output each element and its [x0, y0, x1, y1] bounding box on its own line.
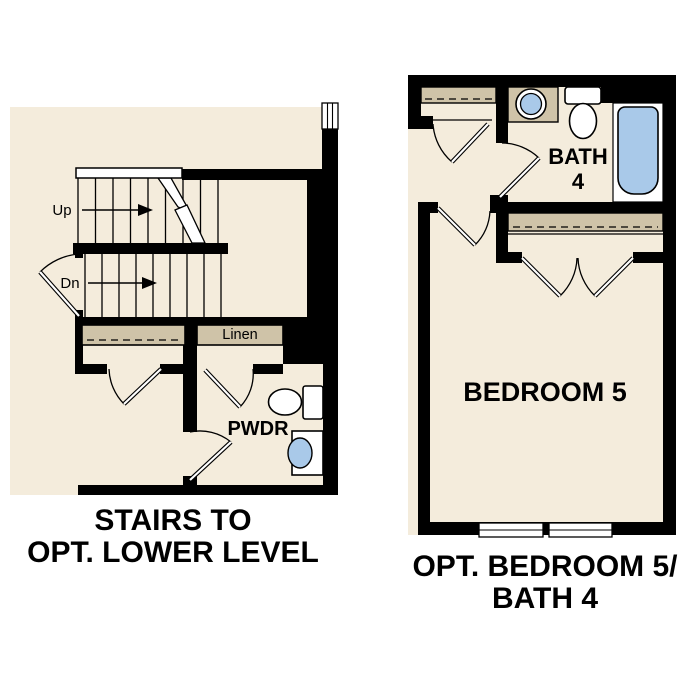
bath-label-line2: 4 — [572, 169, 585, 194]
wall-segment — [73, 243, 228, 254]
wall-segment — [75, 243, 83, 258]
wall-segment — [633, 252, 676, 263]
wall-segment — [78, 485, 338, 495]
wall-segment — [75, 364, 107, 374]
bath-label-line1: BATH — [548, 144, 607, 169]
wall-segment — [322, 129, 338, 180]
left-plan-caption: STAIRS TO OPT. LOWER LEVEL — [27, 504, 319, 569]
bedroom-window-icon — [549, 523, 612, 537]
stair-landing-bar — [76, 168, 182, 178]
bedroom-closet — [508, 213, 663, 234]
left-floor-area — [10, 107, 338, 495]
sink-icon — [288, 431, 323, 475]
vanity-sink-icon — [508, 87, 558, 122]
bedroom-label: BEDROOM 5 — [463, 377, 627, 407]
floorplan-page: Linen — [0, 0, 687, 687]
wall-segment — [601, 75, 676, 103]
linen-label: Linen — [222, 327, 257, 343]
left-caption-line1: STAIRS TO — [94, 504, 251, 537]
left-caption-line2: OPT. LOWER LEVEL — [27, 536, 319, 569]
floorplan-canvas: Linen — [0, 0, 687, 687]
linen-closet: Linen — [197, 325, 283, 345]
left-floor-plan: Linen — [10, 103, 338, 569]
wall-segment — [253, 364, 283, 374]
right-caption-line2: BATH 4 — [492, 582, 598, 615]
bedroom-window-icon — [479, 523, 543, 537]
wall-segment — [496, 252, 522, 263]
powder-room-label: PWDR — [227, 418, 289, 440]
coat-closet — [82, 325, 185, 345]
bathtub-icon — [613, 103, 663, 202]
down-label: Dn — [60, 275, 79, 292]
wall-segment — [418, 202, 430, 535]
right-caption-line1: OPT. BEDROOM 5/ — [412, 550, 678, 583]
wall-segment — [182, 169, 338, 180]
wall-segment — [496, 87, 508, 143]
wall-segment — [490, 202, 676, 213]
wall-segment — [408, 116, 433, 129]
wall-segment — [663, 75, 676, 535]
wall-segment — [418, 522, 676, 535]
up-label: Up — [52, 202, 71, 219]
right-plan-caption: OPT. BEDROOM 5/ BATH 4 — [412, 550, 678, 615]
right-floor-plan: BATH 4 BEDROOM 5 OPT. BEDROOM 5/ BATH 4 — [408, 75, 678, 615]
wall-segment — [307, 180, 338, 327]
wall-segment — [323, 364, 338, 495]
wall-segment — [283, 327, 338, 364]
window-icon — [322, 103, 338, 129]
